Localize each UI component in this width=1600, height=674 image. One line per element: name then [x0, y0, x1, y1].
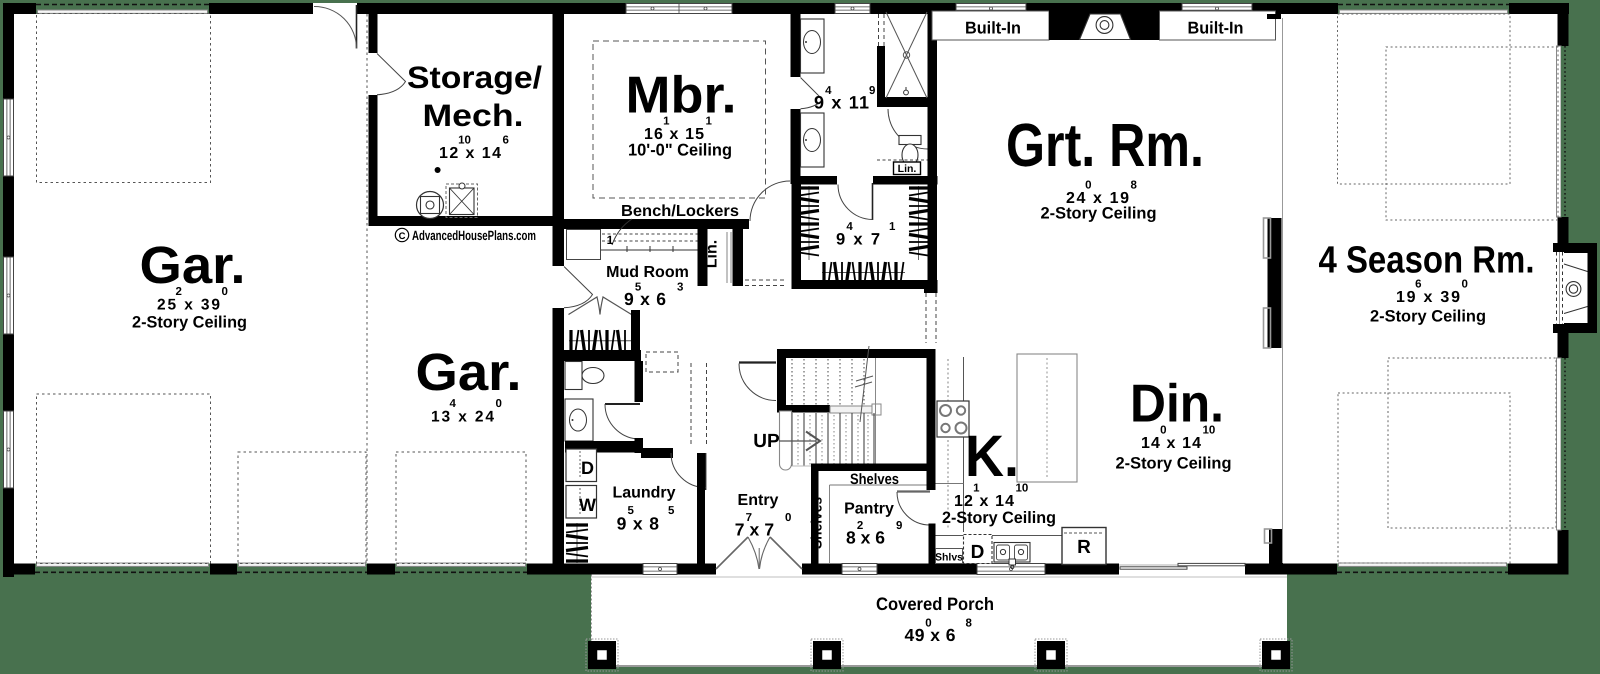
- svg-text:7: 7: [746, 512, 752, 524]
- svg-text:6: 6: [1415, 279, 1421, 291]
- svg-text:Shelves: Shelves: [809, 497, 826, 549]
- svg-text:Shelves: Shelves: [850, 471, 899, 488]
- svg-text:5: 5: [628, 505, 635, 517]
- svg-text:Gar.: Gar.: [140, 236, 246, 295]
- svg-text:2-Story Ceiling: 2-Story Ceiling: [942, 509, 1056, 527]
- svg-text:8: 8: [1131, 180, 1138, 192]
- svg-text:Mbr.: Mbr.: [626, 67, 737, 125]
- svg-text:Laundry: Laundry: [612, 485, 675, 502]
- svg-text:9 x 6: 9 x 6: [624, 289, 666, 309]
- svg-text:Grt. Rm.: Grt. Rm.: [1006, 111, 1204, 179]
- svg-text:5: 5: [668, 505, 675, 517]
- svg-text:Lin.: Lin.: [704, 240, 721, 268]
- svg-text:2: 2: [176, 286, 182, 298]
- svg-text:9: 9: [896, 520, 902, 532]
- svg-text:2: 2: [857, 520, 863, 532]
- svg-text:0: 0: [1462, 279, 1468, 291]
- svg-text:10: 10: [1016, 483, 1029, 495]
- svg-text:Built-In: Built-In: [965, 19, 1021, 38]
- svg-text:Mud Room: Mud Room: [606, 264, 689, 281]
- svg-text:10'-0" Ceiling: 10'-0" Ceiling: [628, 141, 732, 160]
- svg-text:1: 1: [889, 221, 896, 233]
- svg-text:1: 1: [663, 116, 670, 128]
- svg-text:0: 0: [1160, 425, 1166, 437]
- svg-text:6: 6: [503, 135, 509, 147]
- svg-text:0: 0: [1085, 180, 1091, 192]
- svg-text:0: 0: [496, 398, 502, 410]
- svg-text:Shlvs: Shlvs: [935, 552, 963, 564]
- svg-text:Entry: Entry: [738, 492, 779, 509]
- svg-text:10: 10: [458, 135, 471, 147]
- svg-text:10: 10: [1203, 425, 1216, 437]
- svg-text:Pantry: Pantry: [844, 501, 894, 518]
- svg-text:4 Season Rm.: 4 Season Rm.: [1319, 240, 1535, 282]
- svg-text:D: D: [581, 458, 594, 478]
- svg-text:Storage/: Storage/: [407, 60, 542, 95]
- svg-text:W: W: [579, 495, 596, 515]
- svg-text:3: 3: [677, 282, 683, 294]
- svg-text:8: 8: [966, 617, 973, 629]
- svg-text:Lin.: Lin.: [898, 163, 917, 175]
- svg-text:0: 0: [222, 286, 228, 298]
- svg-text:K.: K.: [965, 424, 1019, 489]
- svg-text:Gar.: Gar.: [416, 343, 522, 402]
- svg-text:C: C: [399, 231, 406, 242]
- svg-text:4: 4: [825, 85, 832, 97]
- svg-text:0: 0: [925, 617, 931, 629]
- svg-text:Built-In: Built-In: [1188, 19, 1244, 38]
- svg-text:AdvancedHousePlans.com: AdvancedHousePlans.com: [412, 228, 536, 243]
- svg-text:2-Story Ceiling: 2-Story Ceiling: [1116, 455, 1232, 473]
- svg-text:7 x 7: 7 x 7: [735, 519, 774, 539]
- svg-text:D: D: [971, 542, 985, 563]
- svg-text:4: 4: [846, 221, 853, 233]
- svg-text:8 x 6: 8 x 6: [846, 528, 885, 548]
- svg-text:UP: UP: [753, 431, 780, 452]
- svg-text:5: 5: [635, 282, 642, 294]
- svg-text:2-Story Ceiling: 2-Story Ceiling: [1370, 308, 1486, 326]
- svg-text:Covered Porch: Covered Porch: [876, 594, 994, 614]
- svg-text:0: 0: [785, 512, 791, 524]
- svg-text:1: 1: [973, 483, 980, 495]
- svg-text:Mech.: Mech.: [423, 98, 524, 133]
- svg-text:2-Story Ceiling: 2-Story Ceiling: [132, 314, 247, 332]
- svg-text:R: R: [1077, 537, 1091, 558]
- svg-text:9: 9: [869, 85, 875, 97]
- svg-text:Bench/Lockers: Bench/Lockers: [621, 203, 739, 220]
- svg-text:4: 4: [450, 398, 457, 410]
- svg-text:1: 1: [607, 233, 614, 247]
- svg-text:2-Story Ceiling: 2-Story Ceiling: [1041, 205, 1157, 223]
- svg-text:1: 1: [706, 116, 713, 128]
- svg-text:9 x 7: 9 x 7: [836, 231, 880, 249]
- svg-text:9 x 8: 9 x 8: [617, 514, 660, 534]
